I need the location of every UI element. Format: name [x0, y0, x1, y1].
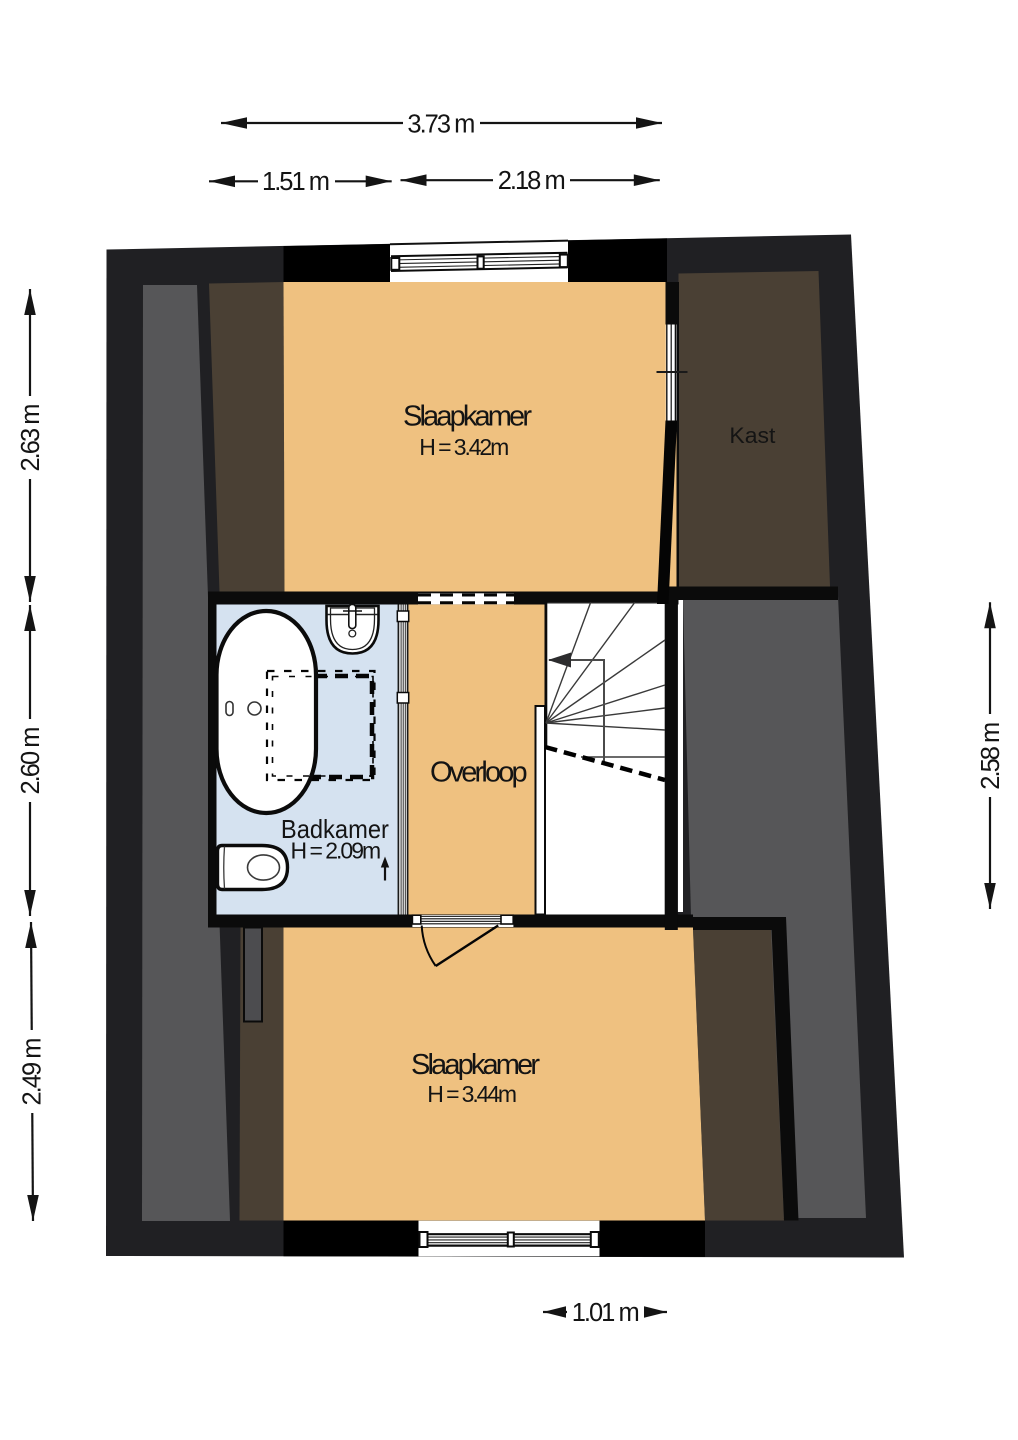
svg-text:2.49 m: 2.49 m — [18, 1038, 46, 1106]
svg-text:Kast: Kast — [729, 423, 776, 448]
svg-text:2.18 m: 2.18 m — [498, 167, 566, 195]
svg-text:2.63 m: 2.63 m — [17, 404, 45, 472]
svg-text:3.73 m: 3.73 m — [407, 111, 475, 139]
svg-text:Slaapkamer: Slaapkamer — [403, 400, 532, 432]
svg-text:H = 3.44m: H = 3.44m — [427, 1081, 517, 1107]
svg-text:H = 3.42m: H = 3.42m — [419, 434, 509, 460]
svg-text:H = 2.09m: H = 2.09m — [290, 838, 381, 864]
svg-text:1.01 m: 1.01 m — [572, 1299, 640, 1327]
svg-text:Overloop: Overloop — [430, 757, 528, 789]
svg-text:2.58 m: 2.58 m — [977, 722, 1005, 790]
svg-text:2.60 m: 2.60 m — [17, 727, 45, 795]
svg-text:1.51 m: 1.51 m — [262, 168, 330, 196]
svg-text:Slaapkamer: Slaapkamer — [411, 1049, 540, 1081]
